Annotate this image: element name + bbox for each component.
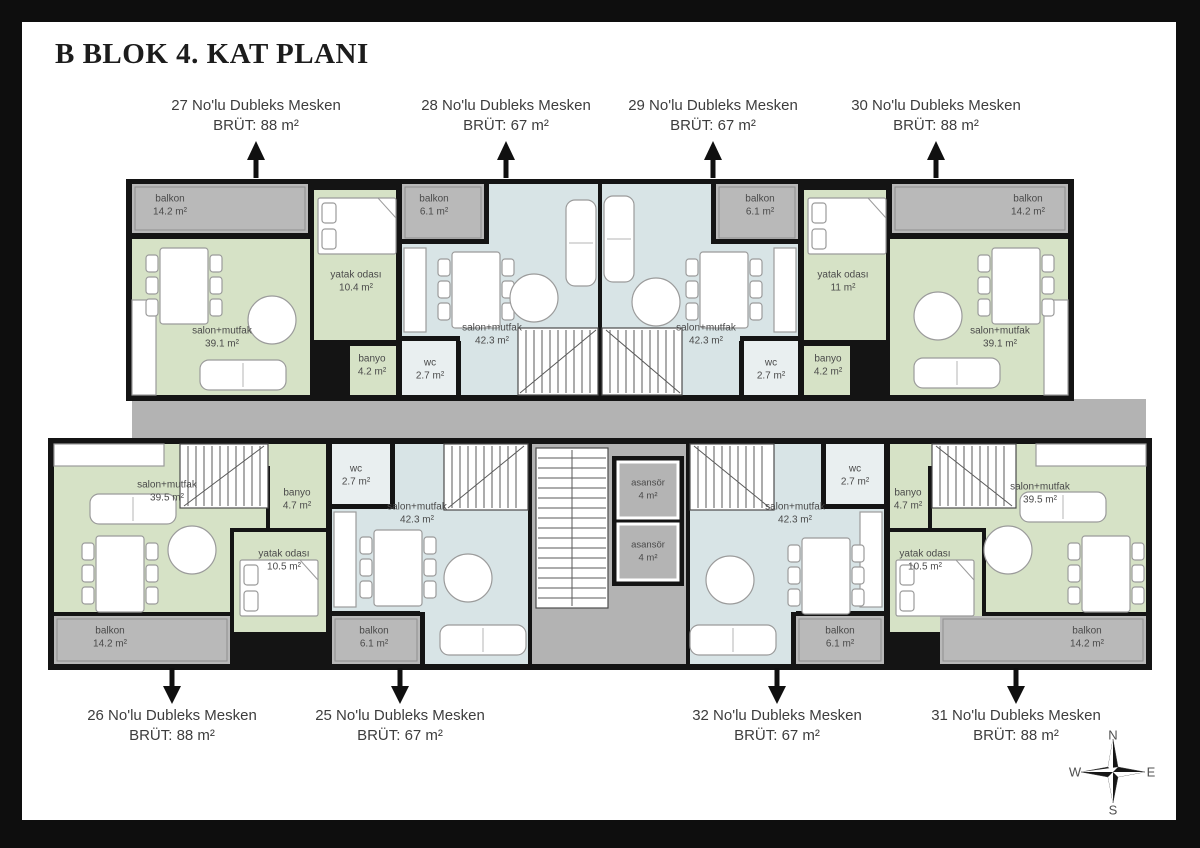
u25-balkon-wall <box>420 612 425 664</box>
room-area: 6.1 m² <box>359 638 388 651</box>
room-area: 2.7 m² <box>342 476 370 489</box>
room-name: yatak odası <box>899 549 950 562</box>
room-label-u31-yatak: yatak odası 10.5 m² <box>899 549 950 574</box>
room-area: 4.2 m² <box>814 366 842 379</box>
u25-wc-wall <box>390 444 395 504</box>
u29-kitchen-counter <box>774 248 796 332</box>
room-label-u29-salon: salon+mutfak 42.3 m² <box>676 323 736 348</box>
page-title: B BLOK 4. KAT PLANI <box>55 38 369 71</box>
room-name: balkon <box>825 626 854 639</box>
room-label-u27-yatak: yatak odası 10.4 m² <box>330 270 381 295</box>
unit-27-name: 27 No'lu Dubleks Mesken <box>171 96 341 116</box>
stairs-u31 <box>932 444 1016 508</box>
room-label-u29-wc: wc 2.7 m² <box>757 358 785 383</box>
room-name: banyo <box>894 488 922 501</box>
u26-yatak-wall2 <box>230 532 234 632</box>
room-label-u31-banyo: banyo 4.7 m² <box>894 488 922 513</box>
room-label-u26-banyo: banyo 4.7 m² <box>283 488 311 513</box>
unit-label-30: 30 No'lu Dubleks Mesken BRÜT: 88 m² <box>851 96 1021 136</box>
room-name: balkon <box>1011 194 1045 207</box>
unit-31-area: BRÜT: 88 m² <box>931 726 1101 746</box>
u25-balkon-wall2 <box>332 611 420 616</box>
room-label-u30-salon: salon+mutfak 39.1 m² <box>970 326 1030 351</box>
u31-yatak-wall <box>890 528 986 532</box>
room-area: 2.7 m² <box>841 476 869 489</box>
room-area: 10.5 m² <box>899 561 950 574</box>
u28-wc-wall <box>398 336 460 341</box>
unit-28-area: BRÜT: 67 m² <box>421 116 591 136</box>
room-label-u26-salon: salon+mutfak 39.5 m² <box>137 480 197 505</box>
room-label-u29-balkon: balkon 6.1 m² <box>745 194 774 219</box>
room-area: 42.3 m² <box>387 514 447 527</box>
room-name: wc <box>841 464 869 477</box>
stairs-common <box>536 448 608 608</box>
room-area: 4 m² <box>631 490 665 503</box>
room-name: banyo <box>358 354 386 367</box>
unit-label-26: 26 No'lu Dubleks Mesken BRÜT: 88 m² <box>87 706 257 746</box>
room-name: asansör <box>631 540 665 553</box>
room-area: 39.1 m² <box>970 338 1030 351</box>
room-label-u32-wc: wc 2.7 m² <box>841 464 869 489</box>
unit-32-area: BRÜT: 67 m² <box>692 726 862 746</box>
unit-25-name: 25 No'lu Dubleks Mesken <box>315 706 485 726</box>
room-name: balkon <box>359 626 388 639</box>
compass-north-label: N <box>1108 728 1117 743</box>
room-name: salon+mutfak <box>765 502 825 515</box>
unit-32-name: 32 No'lu Dubleks Mesken <box>692 706 862 726</box>
u28-wc-wall2 <box>456 341 461 395</box>
u29-wc-wall2 <box>739 341 744 395</box>
u28-balkon-wall <box>484 184 489 241</box>
room-label-u25-wc: wc 2.7 m² <box>342 464 370 489</box>
room-label-u27-banyo: banyo 4.2 m² <box>358 354 386 379</box>
room-area: 4 m² <box>631 552 665 565</box>
u26-kitchen-counter <box>54 444 164 466</box>
u31-kitchen-counter <box>1036 444 1146 466</box>
room-area: 14.2 m² <box>93 638 127 651</box>
u25-wc-wall2 <box>332 504 395 509</box>
unit-label-32: 32 No'lu Dubleks Mesken BRÜT: 67 m² <box>692 706 862 746</box>
room-area: 6.1 m² <box>825 638 854 651</box>
stairs-u29 <box>602 328 682 395</box>
unit-30-area: BRÜT: 88 m² <box>851 116 1021 136</box>
u32-balkon-wall <box>791 612 796 664</box>
room-area: 4.2 m² <box>358 366 386 379</box>
room-area: 14.2 m² <box>1070 638 1104 651</box>
compass-west-label: W <box>1069 765 1081 780</box>
unit-25-area: BRÜT: 67 m² <box>315 726 485 746</box>
room-label-elevator-2: asansör 4 m² <box>631 540 665 565</box>
corridor <box>132 399 1146 439</box>
room-name: salon+mutfak <box>970 326 1030 339</box>
room-name: salon+mutfak <box>462 323 522 336</box>
room-name: wc <box>416 358 444 371</box>
u28-balkon-wall2 <box>402 239 489 244</box>
compass-south-label: S <box>1109 803 1118 818</box>
room-area: 42.3 m² <box>462 335 522 348</box>
u29-balkon-wall2 <box>711 239 798 244</box>
room-label-u28-balkon: balkon 6.1 m² <box>419 194 448 219</box>
room-name: salon+mutfak <box>1010 482 1070 495</box>
u28-kitchen-counter <box>404 248 426 332</box>
room-area: 42.3 m² <box>765 514 825 527</box>
room-name: balkon <box>745 194 774 207</box>
room-area: 10.5 m² <box>258 561 309 574</box>
room-area: 42.3 m² <box>676 335 736 348</box>
u29-balkon-wall <box>711 184 716 241</box>
room-area: 4.7 m² <box>894 500 922 513</box>
unit-29-name: 29 No'lu Dubleks Mesken <box>628 96 798 116</box>
room-label-u28-salon: salon+mutfak 42.3 m² <box>462 323 522 348</box>
room-name: balkon <box>419 194 448 207</box>
room-label-u31-balkon: balkon 14.2 m² <box>1070 626 1104 651</box>
u29-wc-wall <box>740 336 798 341</box>
room-label-u26-yatak: yatak odası 10.5 m² <box>258 549 309 574</box>
room-label-u25-balkon: balkon 6.1 m² <box>359 626 388 651</box>
u32-wc-wall2 <box>821 504 884 509</box>
compass-east-label: E <box>1147 765 1156 780</box>
room-name: yatak odası <box>817 270 868 283</box>
room-label-u26-balkon: balkon 14.2 m² <box>93 626 127 651</box>
unit-label-31: 31 No'lu Dubleks Mesken BRÜT: 88 m² <box>931 706 1101 746</box>
unit-28-name: 28 No'lu Dubleks Mesken <box>421 96 591 116</box>
unit-label-29: 29 No'lu Dubleks Mesken BRÜT: 67 m² <box>628 96 798 136</box>
unit-29-area: BRÜT: 67 m² <box>628 116 798 136</box>
room-name: yatak odası <box>330 270 381 283</box>
room-u26-balkon <box>54 616 230 664</box>
room-area: 6.1 m² <box>745 206 774 219</box>
room-area: 39.5 m² <box>137 492 197 505</box>
room-label-u27-balkon: balkon 14.2 m² <box>153 194 187 219</box>
room-name: asansör <box>631 478 665 491</box>
unit-27-area: BRÜT: 88 m² <box>171 116 341 136</box>
room-name: yatak odası <box>258 549 309 562</box>
room-area: 4.7 m² <box>283 500 311 513</box>
room-area: 11 m² <box>817 282 868 295</box>
stairs-u28 <box>518 328 598 395</box>
floor-plan-page: B BLOK 4. KAT PLANI 27 No'lu Dubleks Mes… <box>0 0 1200 848</box>
room-name: balkon <box>93 626 127 639</box>
room-area: 2.7 m² <box>757 370 785 383</box>
unit-26-area: BRÜT: 88 m² <box>87 726 257 746</box>
room-area: 14.2 m² <box>1011 206 1045 219</box>
room-label-elevator-1: asansör 4 m² <box>631 478 665 503</box>
stairs-u25 <box>444 444 528 510</box>
room-area: 10.4 m² <box>330 282 381 295</box>
room-area: 39.1 m² <box>192 338 252 351</box>
room-name: salon+mutfak <box>387 502 447 515</box>
room-name: salon+mutfak <box>137 480 197 493</box>
u26-yatak-wall <box>230 528 326 532</box>
room-name: balkon <box>153 194 187 207</box>
room-area: 2.7 m² <box>416 370 444 383</box>
room-name: salon+mutfak <box>676 323 736 336</box>
room-name: balkon <box>1070 626 1104 639</box>
room-label-u32-salon: salon+mutfak 42.3 m² <box>765 502 825 527</box>
room-label-u25-salon: salon+mutfak 42.3 m² <box>387 502 447 527</box>
room-label-u30-banyo: banyo 4.2 m² <box>814 354 842 379</box>
room-name: wc <box>757 358 785 371</box>
unit-label-28: 28 No'lu Dubleks Mesken BRÜT: 67 m² <box>421 96 591 136</box>
room-area: 6.1 m² <box>419 206 448 219</box>
room-label-u32-balkon: balkon 6.1 m² <box>825 626 854 651</box>
room-area: 39.5 m² <box>1010 494 1070 507</box>
room-label-u27-salon: salon+mutfak 39.1 m² <box>192 326 252 351</box>
unit-31-name: 31 No'lu Dubleks Mesken <box>931 706 1101 726</box>
room-name: salon+mutfak <box>192 326 252 339</box>
room-name: wc <box>342 464 370 477</box>
unit-26-name: 26 No'lu Dubleks Mesken <box>87 706 257 726</box>
room-label-u28-wc: wc 2.7 m² <box>416 358 444 383</box>
room-name: banyo <box>283 488 311 501</box>
stairs-u32 <box>690 444 774 510</box>
room-area: 14.2 m² <box>153 206 187 219</box>
room-label-u31-salon: salon+mutfak 39.5 m² <box>1010 482 1070 507</box>
u32-wc-wall <box>821 444 826 504</box>
unit-label-27: 27 No'lu Dubleks Mesken BRÜT: 88 m² <box>171 96 341 136</box>
room-u31-balkon <box>940 616 1146 664</box>
u25-kitchen-counter <box>334 512 356 607</box>
room-label-u30-balkon: balkon 14.2 m² <box>1011 194 1045 219</box>
room-label-u30-yatak: yatak odası 11 m² <box>817 270 868 295</box>
unit-label-25: 25 No'lu Dubleks Mesken BRÜT: 67 m² <box>315 706 485 746</box>
room-name: banyo <box>814 354 842 367</box>
unit-30-name: 30 No'lu Dubleks Mesken <box>851 96 1021 116</box>
